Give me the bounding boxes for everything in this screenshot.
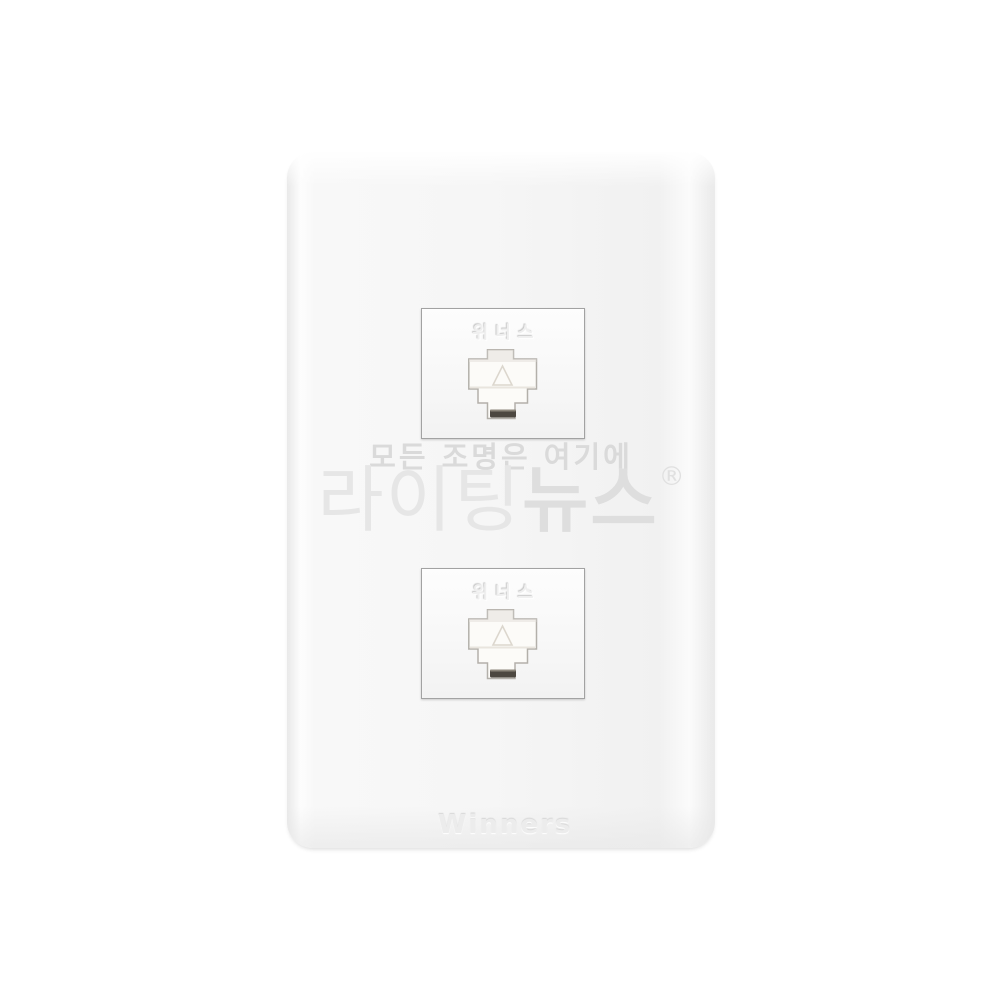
watermark-brand-bold: 뉴스 [522, 458, 658, 542]
rj45-port-icon [468, 349, 538, 420]
registered-trademark-symbol: ® [659, 462, 685, 492]
product-photo: 위너스 위너스 Winners 모든 [0, 0, 1000, 1000]
rj45-port-icon [468, 609, 538, 680]
embossed-brand-label: 위너스 [422, 318, 584, 343]
watermark-brand-light: 라이팅 [317, 458, 522, 542]
embossed-winners-logo: Winners [287, 810, 723, 840]
watermark-brand: 라이팅뉴스® [283, 461, 719, 540]
rj45-module-bottom: 위너스 [421, 568, 585, 699]
embossed-brand-label: 위너스 [422, 578, 584, 603]
rj45-module-top: 위너스 [421, 308, 585, 439]
